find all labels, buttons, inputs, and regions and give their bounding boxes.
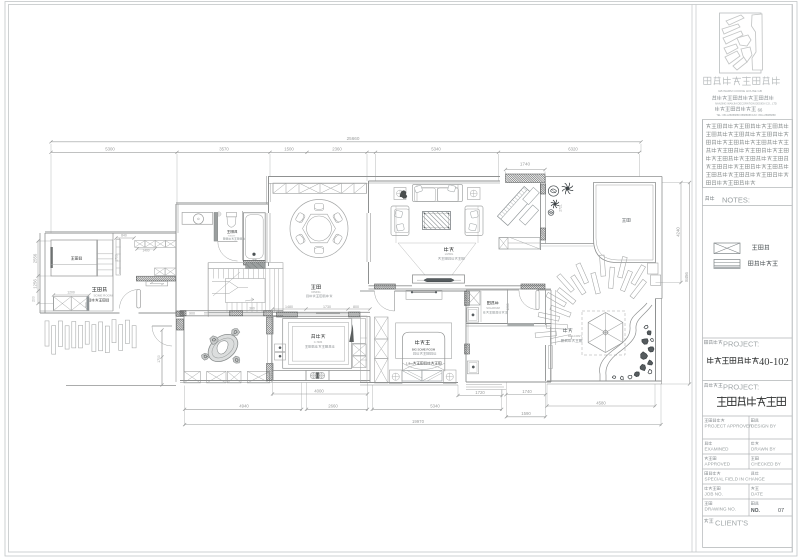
svg-text:1700: 1700	[115, 254, 119, 262]
svg-text:DRAWING NO.: DRAWING NO.	[705, 507, 736, 512]
svg-text:25660: 25660	[347, 136, 360, 141]
svg-text:DINING: DINING	[311, 290, 320, 294]
svg-text:SOLARIUM: SOLARIUM	[486, 306, 500, 310]
svg-text:1.8m: 1.8m	[406, 362, 413, 366]
svg-text:1590: 1590	[521, 411, 531, 416]
svg-text:NO.: NO.	[751, 508, 761, 514]
svg-text:TOILET: TOILET	[228, 235, 236, 237]
svg-text:SPECIAL FIELD IN CHANGE: SPECIAL FIELD IN CHANGE	[705, 477, 765, 482]
svg-text:900: 900	[189, 312, 195, 316]
svg-text:5300: 5300	[105, 147, 115, 152]
svg-text:07: 07	[778, 508, 784, 514]
svg-text:1480: 1480	[285, 305, 293, 309]
svg-text:3570: 3570	[219, 147, 229, 152]
svg-text:2660: 2660	[328, 404, 338, 409]
svg-text:1256: 1256	[33, 279, 38, 289]
svg-text:EXAMINED: EXAMINED	[705, 447, 730, 452]
svg-text:DRAWN BY: DRAWN BY	[751, 447, 776, 452]
svg-text:800: 800	[353, 305, 359, 309]
svg-text:4000: 4000	[314, 388, 324, 393]
svg-text:DATE: DATE	[751, 492, 763, 497]
svg-text:GB WARM COOKIE HOUSE GB: GB WARM COOKIE HOUSE GB	[718, 89, 762, 93]
svg-text:CHECKED BY: CHECKED BY	[751, 462, 781, 467]
svg-text:1740: 1740	[520, 162, 531, 167]
svg-text:TEL: 0511-88888888 88888888: TEL: 0511-88888888 88888888 FAX: 0511-88…	[716, 114, 776, 117]
svg-text:BIG SOME ROOM: BIG SOME ROOM	[412, 348, 436, 352]
svg-text:4240: 4240	[676, 227, 681, 237]
svg-text:CLIENT'S: CLIENT'S	[715, 519, 748, 528]
svg-text:4580: 4580	[596, 400, 606, 405]
svg-text:1200: 1200	[506, 303, 510, 310]
svg-text:DESIGN BY: DESIGN BY	[751, 424, 776, 429]
svg-text:PROJECT:: PROJECT:	[723, 340, 759, 349]
svg-text:840: 840	[121, 234, 127, 238]
svg-text:1500: 1500	[284, 147, 294, 152]
svg-text:SOME ROOM: SOME ROOM	[93, 294, 113, 298]
svg-text:2721: 2721	[559, 204, 563, 212]
svg-text:NANJING WANJIA DECORATION DESI: NANJING WANJIA DECORATION DESIGN CO., LT…	[715, 101, 777, 105]
svg-text:40-102: 40-102	[759, 357, 789, 368]
svg-text:66: 66	[758, 107, 763, 112]
svg-text:5340: 5340	[430, 404, 440, 409]
svg-text:8456: 8456	[684, 272, 689, 282]
svg-text:1730: 1730	[323, 305, 331, 309]
svg-text:6320: 6320	[568, 147, 578, 152]
svg-text:C-7484: C-7484	[314, 340, 323, 344]
svg-text:2556: 2556	[33, 253, 38, 263]
svg-text:1200: 1200	[67, 291, 75, 295]
svg-text:1700: 1700	[157, 355, 161, 363]
svg-text:4940: 4940	[239, 404, 249, 409]
svg-text:JOB NO.: JOB NO.	[705, 492, 723, 497]
svg-text:LIVING: LIVING	[445, 252, 454, 256]
svg-text:APPROVED: APPROVED	[705, 462, 731, 467]
svg-text:2360: 2360	[332, 147, 342, 152]
svg-text:1720: 1720	[475, 390, 485, 395]
svg-text:PROJECT:: PROJECT:	[723, 383, 759, 392]
svg-text:NOTES:: NOTES:	[722, 196, 750, 205]
svg-text:300: 300	[249, 307, 255, 311]
svg-text:19970: 19970	[412, 419, 425, 424]
svg-text:200: 200	[32, 296, 36, 302]
svg-text:5340: 5340	[431, 147, 441, 152]
svg-text:1740: 1740	[522, 389, 532, 394]
svg-text:PROJECT APPROVER: PROJECT APPROVER	[705, 424, 754, 429]
svg-text:BALCONY: BALCONY	[568, 334, 582, 338]
